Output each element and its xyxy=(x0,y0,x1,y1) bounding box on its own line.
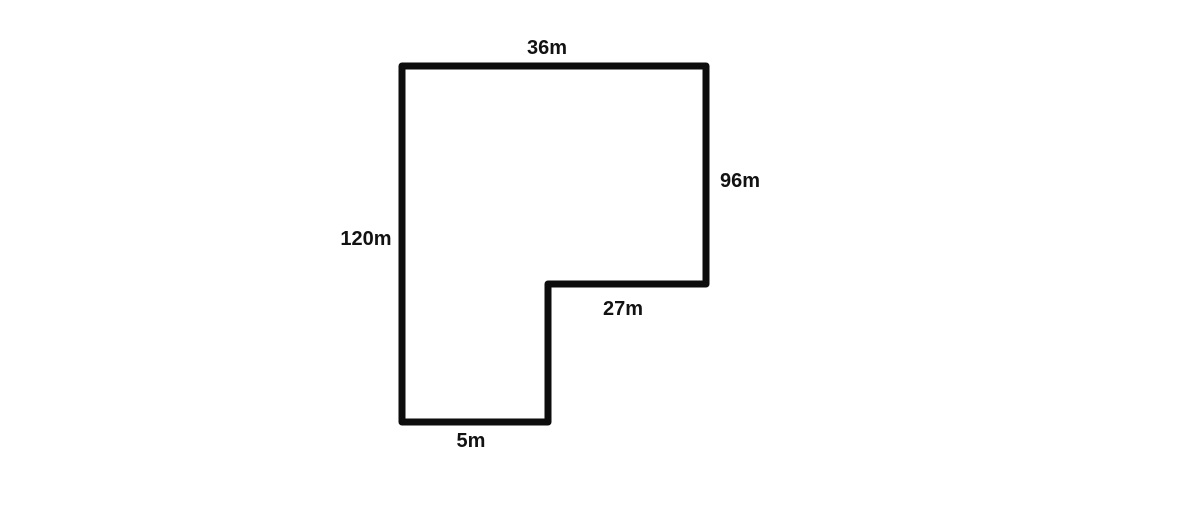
dim-label-inner-width: 27m xyxy=(603,299,643,319)
shape-outline-path xyxy=(402,66,706,422)
dim-label-bottom-width: 5m xyxy=(457,431,486,451)
dim-label-top-width: 36m xyxy=(527,38,567,58)
dim-label-left-height: 120m xyxy=(340,229,391,249)
dim-label-right-height: 96m xyxy=(720,171,760,191)
diagram-canvas: 36m 96m 120m 27m 5m xyxy=(0,0,1200,505)
l-shape-figure xyxy=(0,0,1200,505)
